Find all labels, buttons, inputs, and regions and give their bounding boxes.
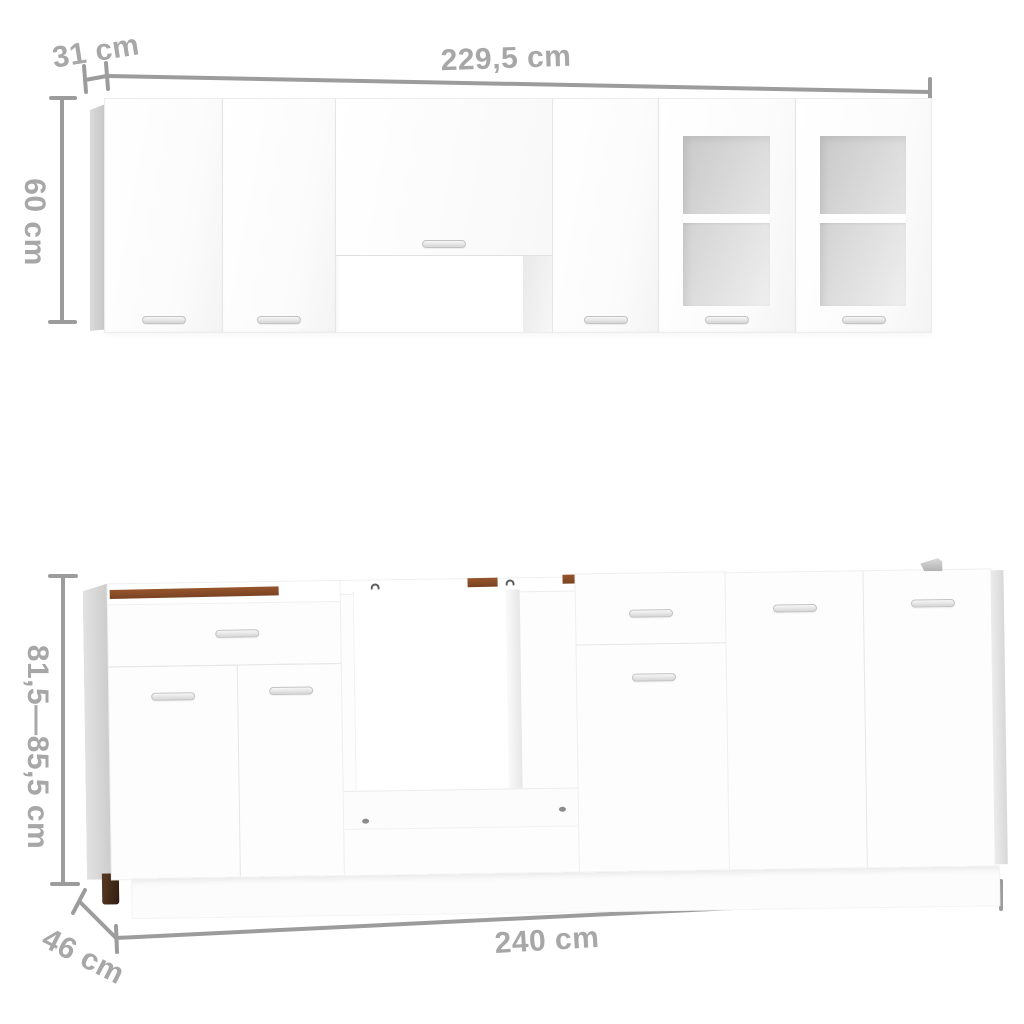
door-handle [422,240,466,248]
glass-cabinet-shelf [820,214,906,223]
base-cabinet-unit [82,564,1007,928]
base-deep-drawer [576,642,729,872]
line-wall-width [107,76,930,92]
base-drawer [576,584,727,645]
base-width-label: 240 cm [494,921,601,961]
door-handle [151,692,195,701]
door-divider [862,571,867,868]
wall-cabinet-front [105,99,931,332]
oven-bottom-panel [344,788,580,830]
glass-cabinet-shelf [683,214,770,223]
wall-glass-door-2 [795,99,931,332]
base-door-right [237,663,345,878]
base-height-label: 81,5—85,5 cm [20,645,54,849]
wall-cabinet-side-panel [90,102,106,331]
sink-cabinet [725,569,994,870]
door-handle [911,599,955,608]
wall-glass-door-1 [658,99,795,332]
door-handle [773,604,817,613]
glass-pane [683,136,770,306]
glass-pane [820,136,906,306]
wood-edge-strip [110,586,279,599]
wood-edge-strip [467,578,497,588]
base-cabinet-left [108,581,345,879]
drawer-handle [632,673,676,682]
base-cabinet-front [107,564,1007,920]
hinge-hole [371,583,380,589]
drawer-handle [629,609,673,618]
base-door-left [109,665,240,881]
kitchen-cabinet-dimension-diagram: 31 cm 229,5 cm 60 cm 81,5—85,5 cm 46 cm … [0,0,1024,1024]
door-handle [142,316,186,324]
wall-width-label: 229,5 cm [440,40,572,79]
wall-door-2 [222,99,335,332]
base-drawer [108,601,342,667]
base-drawer-unit [575,572,729,872]
door-handle [257,316,301,324]
door-handle [705,316,749,324]
hood-top-cabinet [336,99,552,256]
hood-recess-side-shadow [523,256,553,332]
hinge-hole [506,579,515,585]
oven-recess [353,589,523,790]
wall-cabinet-unit [90,97,931,333]
wall-door-3 [552,99,658,332]
door-handle [842,316,886,324]
oven-recess-side-shadow [506,589,523,788]
line-wall-depth [85,76,107,80]
door-handle [269,686,313,695]
oven-housing [341,578,580,876]
wall-hood-section [335,99,552,332]
wall-door-1 [105,99,222,332]
drawer-handle [215,629,259,638]
hood-recess [336,256,523,332]
door-handle [584,316,628,324]
wall-height-label: 60 cm [17,178,51,266]
